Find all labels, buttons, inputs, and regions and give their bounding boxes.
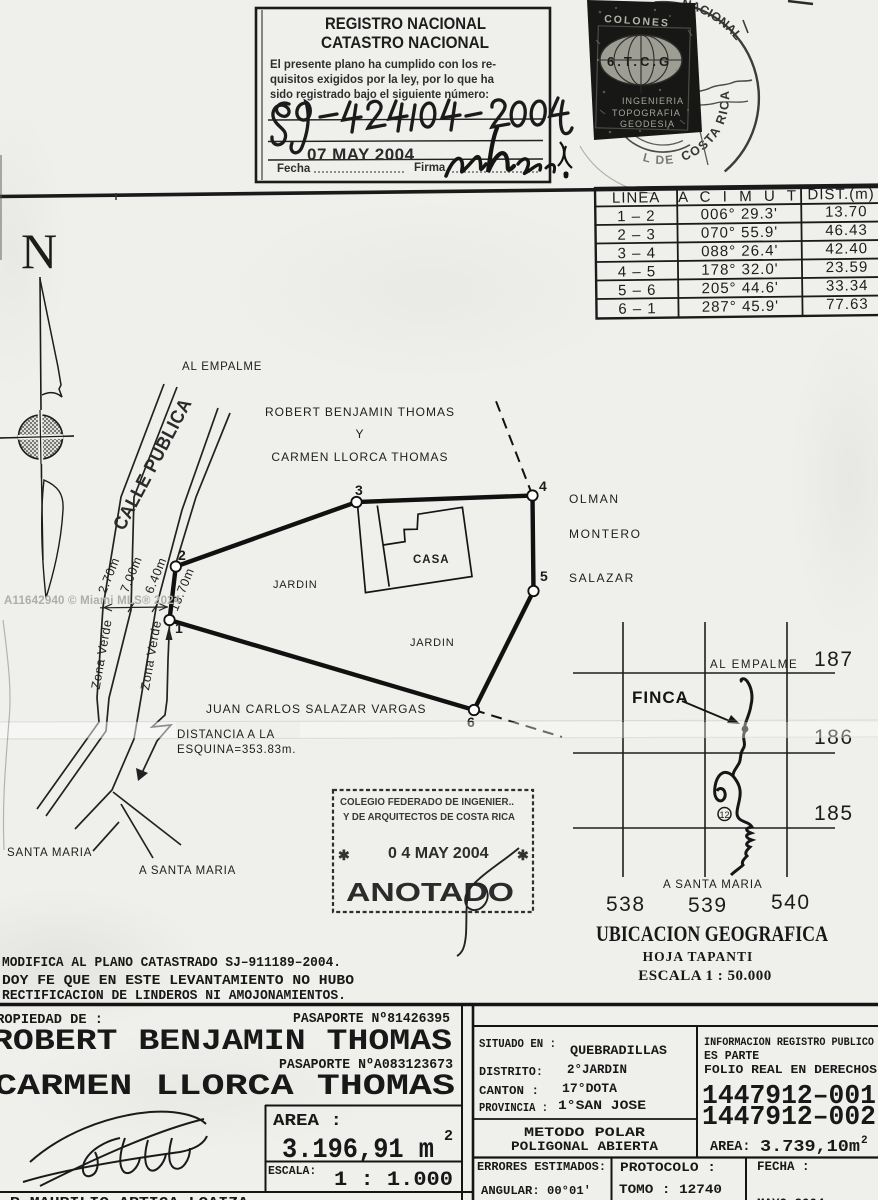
svg-text:PROVINCIA :: PROVINCIA : xyxy=(479,1102,548,1115)
svg-text:2: 2 xyxy=(444,1128,453,1145)
svg-text:FOLIO REAL EN DERECHOS: FOLIO REAL EN DERECHOS xyxy=(704,1063,877,1077)
svg-text:REGISTRO NACIONAL: REGISTRO NACIONAL xyxy=(325,14,486,33)
svg-text:JARDIN: JARDIN xyxy=(273,579,318,591)
svg-text:SANTA MARIA: SANTA MARIA xyxy=(7,847,92,859)
svg-text:CARMEN LLORCA THOMAS: CARMEN LLORCA THOMAS xyxy=(271,450,448,464)
svg-text:ANGULAR: 00°01': ANGULAR: 00°01' xyxy=(481,1184,591,1198)
svg-text:quisitos exigidos por la ley,: quisitos exigidos por la ley, por lo que… xyxy=(270,72,494,86)
svg-text:Firma: Firma xyxy=(414,162,446,174)
svg-text:✱: ✱ xyxy=(338,847,350,863)
svg-text:INGENIERIA: INGENIERIA xyxy=(622,96,684,106)
svg-text:AL EMPALME: AL EMPALME xyxy=(710,659,798,671)
svg-text:0 4 MAY 2004: 0 4 MAY 2004 xyxy=(388,845,489,862)
svg-text:3: 3 xyxy=(355,482,363,498)
svg-text:42.40: 42.40 xyxy=(825,240,868,258)
svg-text:DIST.(m): DIST.(m) xyxy=(807,186,874,204)
svg-text:1 : 1.000: 1 : 1.000 xyxy=(334,1169,453,1192)
svg-text:3 – 4: 3 – 4 xyxy=(618,245,657,262)
svg-text:1 – 2: 1 – 2 xyxy=(617,208,656,225)
svg-text:A SANTA MARIA: A SANTA MARIA xyxy=(139,865,236,877)
svg-text:46.43: 46.43 xyxy=(825,222,868,240)
svg-text:006° 29.3': 006° 29.3' xyxy=(701,205,778,223)
svg-text:QUEBRADILLAS: QUEBRADILLAS xyxy=(570,1043,667,1058)
svg-text:12: 12 xyxy=(719,810,729,820)
svg-text:sido registrado bajo el siguie: sido registrado bajo el siguiente número… xyxy=(270,87,489,101)
svg-text:A SANTA MARIA: A SANTA MARIA xyxy=(663,879,763,891)
svg-text:ERRORES ESTIMADOS:: ERRORES ESTIMADOS: xyxy=(477,1161,606,1174)
svg-text:ESQUINA=353.83m.: ESQUINA=353.83m. xyxy=(177,744,296,756)
svg-text:ESCALA:: ESCALA: xyxy=(268,1165,316,1178)
svg-text:6 – 1: 6 – 1 xyxy=(618,300,657,317)
svg-text:070° 55.9': 070° 55.9' xyxy=(701,224,778,242)
svg-text:2°JARDIN: 2°JARDIN xyxy=(567,1063,627,1077)
svg-text:205° 44.6': 205° 44.6' xyxy=(702,279,779,297)
svg-text:187: 187 xyxy=(814,648,854,671)
svg-text:4: 4 xyxy=(539,478,547,494)
svg-text:2: 2 xyxy=(861,1135,868,1147)
svg-text:3.196,91 m: 3.196,91 m xyxy=(282,1135,434,1166)
svg-text:CARMEN LLORCA THOMAS: CARMEN LLORCA THOMAS xyxy=(0,1070,455,1104)
svg-text:MODIFICA AL PLANO CATASTRADO S: MODIFICA AL PLANO CATASTRADO SJ–911189–2… xyxy=(2,956,341,971)
svg-text:N: N xyxy=(21,223,57,279)
svg-text:JARDIN: JARDIN xyxy=(410,637,455,649)
svg-text:MONTERO: MONTERO xyxy=(569,527,642,541)
svg-text:178° 32.0': 178° 32.0' xyxy=(701,261,778,279)
svg-text:Y DE ARQUITECTOS DE COSTA RICA: Y DE ARQUITECTOS DE COSTA RICA xyxy=(343,811,515,823)
svg-text:HOJA TAPANTI: HOJA TAPANTI xyxy=(643,949,754,964)
svg-text:TOMO : 12740: TOMO : 12740 xyxy=(619,1183,722,1197)
svg-text:CASA: CASA xyxy=(413,554,450,566)
svg-text:ANOTADO: ANOTADO xyxy=(346,877,514,907)
svg-text:TOPOGRAFIA: TOPOGRAFIA xyxy=(612,108,681,118)
svg-text:07 MAY 2004: 07 MAY 2004 xyxy=(307,145,415,164)
svg-text:SITUADO EN :: SITUADO EN : xyxy=(479,1038,556,1051)
svg-text:3.739,10m: 3.739,10m xyxy=(760,1138,860,1157)
svg-text:540: 540 xyxy=(771,891,811,914)
svg-text:5 – 6: 5 – 6 xyxy=(618,282,657,299)
svg-text:1447912–002: 1447912–002 xyxy=(702,1103,876,1133)
svg-text:5: 5 xyxy=(540,568,548,584)
svg-text:OLMAN: OLMAN xyxy=(569,492,620,506)
svg-text:Y: Y xyxy=(355,427,364,441)
svg-text:METODO POLAR: METODO POLAR xyxy=(524,1125,645,1140)
svg-text:6.T.C.G: 6.T.C.G xyxy=(607,54,672,69)
svg-text:COLEGIO FEDERADO DE INGENIER..: COLEGIO FEDERADO DE INGENIER.. xyxy=(340,796,514,808)
svg-text:4 – 5: 4 – 5 xyxy=(618,263,657,280)
svg-text:A11642940 © Miami MLS® 2024: A11642940 © Miami MLS® 2024 xyxy=(4,595,181,607)
svg-text:DISTRITO:: DISTRITO: xyxy=(479,1066,543,1079)
svg-text:JUAN CARLOS SALAZAR VARGAS: JUAN CARLOS SALAZAR VARGAS xyxy=(206,702,427,716)
svg-text:ES PARTE: ES PARTE xyxy=(704,1050,759,1063)
svg-text:AREA :: AREA : xyxy=(273,1112,342,1131)
svg-text:2 – 3: 2 – 3 xyxy=(617,226,656,243)
svg-text:FECHA :: FECHA : xyxy=(757,1160,810,1174)
svg-text:1: 1 xyxy=(175,620,183,636)
svg-text:UBICACION GEOGRAFICA: UBICACION GEOGRAFICA xyxy=(596,921,828,946)
svg-text:DISTANCIA A LA: DISTANCIA A LA xyxy=(177,729,275,741)
svg-text:287° 45.9': 287° 45.9' xyxy=(702,298,779,316)
svg-text:AL EMPALME: AL EMPALME xyxy=(182,361,262,373)
svg-text:ROBERT BENJAMIN THOMAS: ROBERT BENJAMIN THOMAS xyxy=(0,1025,452,1059)
svg-text:Fecha: Fecha xyxy=(277,163,311,175)
svg-text:CANTON :: CANTON : xyxy=(479,1085,539,1098)
svg-text:SALAZAR: SALAZAR xyxy=(569,571,635,585)
svg-text:23.59: 23.59 xyxy=(826,259,869,277)
svg-text:CATASTRO NACIONAL: CATASTRO NACIONAL xyxy=(321,33,489,52)
svg-text:LINEA: LINEA xyxy=(612,189,661,207)
svg-text:AREA:: AREA: xyxy=(710,1140,751,1155)
svg-text:ROBERT BENJAMIN THOMAS: ROBERT BENJAMIN THOMAS xyxy=(265,405,455,419)
svg-text:538: 538 xyxy=(606,893,646,916)
svg-text:GEODESIA: GEODESIA xyxy=(620,119,675,129)
svg-text:A C I M U T: A C I M U T xyxy=(678,187,800,205)
svg-text:INFORMACION REGISTRO PUBLICO: INFORMACION REGISTRO PUBLICO xyxy=(704,1037,874,1049)
svg-text:185: 185 xyxy=(814,802,854,825)
svg-text:POLIGONAL ABIERTA: POLIGONAL ABIERTA xyxy=(511,1139,658,1154)
svg-text:ESCALA 1 : 50.000: ESCALA 1 : 50.000 xyxy=(638,968,772,984)
svg-text:539: 539 xyxy=(688,894,728,917)
svg-text:2: 2 xyxy=(178,547,186,563)
svg-text:PROTOCOLO :: PROTOCOLO : xyxy=(620,1161,716,1175)
svg-text:FINCA: FINCA xyxy=(632,688,689,707)
svg-text:RECTIFICACION DE LINDEROS NI A: RECTIFICACION DE LINDEROS NI AMOJONAMIEN… xyxy=(2,989,346,1004)
svg-text:El presente plano ha cumplido: El presente plano ha cumplido con los re… xyxy=(270,57,496,71)
svg-text:77.63: 77.63 xyxy=(826,296,869,314)
svg-text:33.34: 33.34 xyxy=(826,277,869,295)
svg-text:DOY FE QUE EN ESTE LEVANTAMIEN: DOY FE QUE EN ESTE LEVANTAMIENTO NO HUBO xyxy=(2,974,354,989)
svg-text:13.70: 13.70 xyxy=(825,203,868,221)
svg-text:088° 26.4': 088° 26.4' xyxy=(701,242,778,260)
svg-text:17°DOTA: 17°DOTA xyxy=(562,1082,618,1096)
svg-text:1°SAN JOSE: 1°SAN JOSE xyxy=(558,1099,646,1113)
svg-text:.R MAURILIO ARTIGA LOAIZA: .R MAURILIO ARTIGA LOAIZA xyxy=(0,1195,248,1200)
